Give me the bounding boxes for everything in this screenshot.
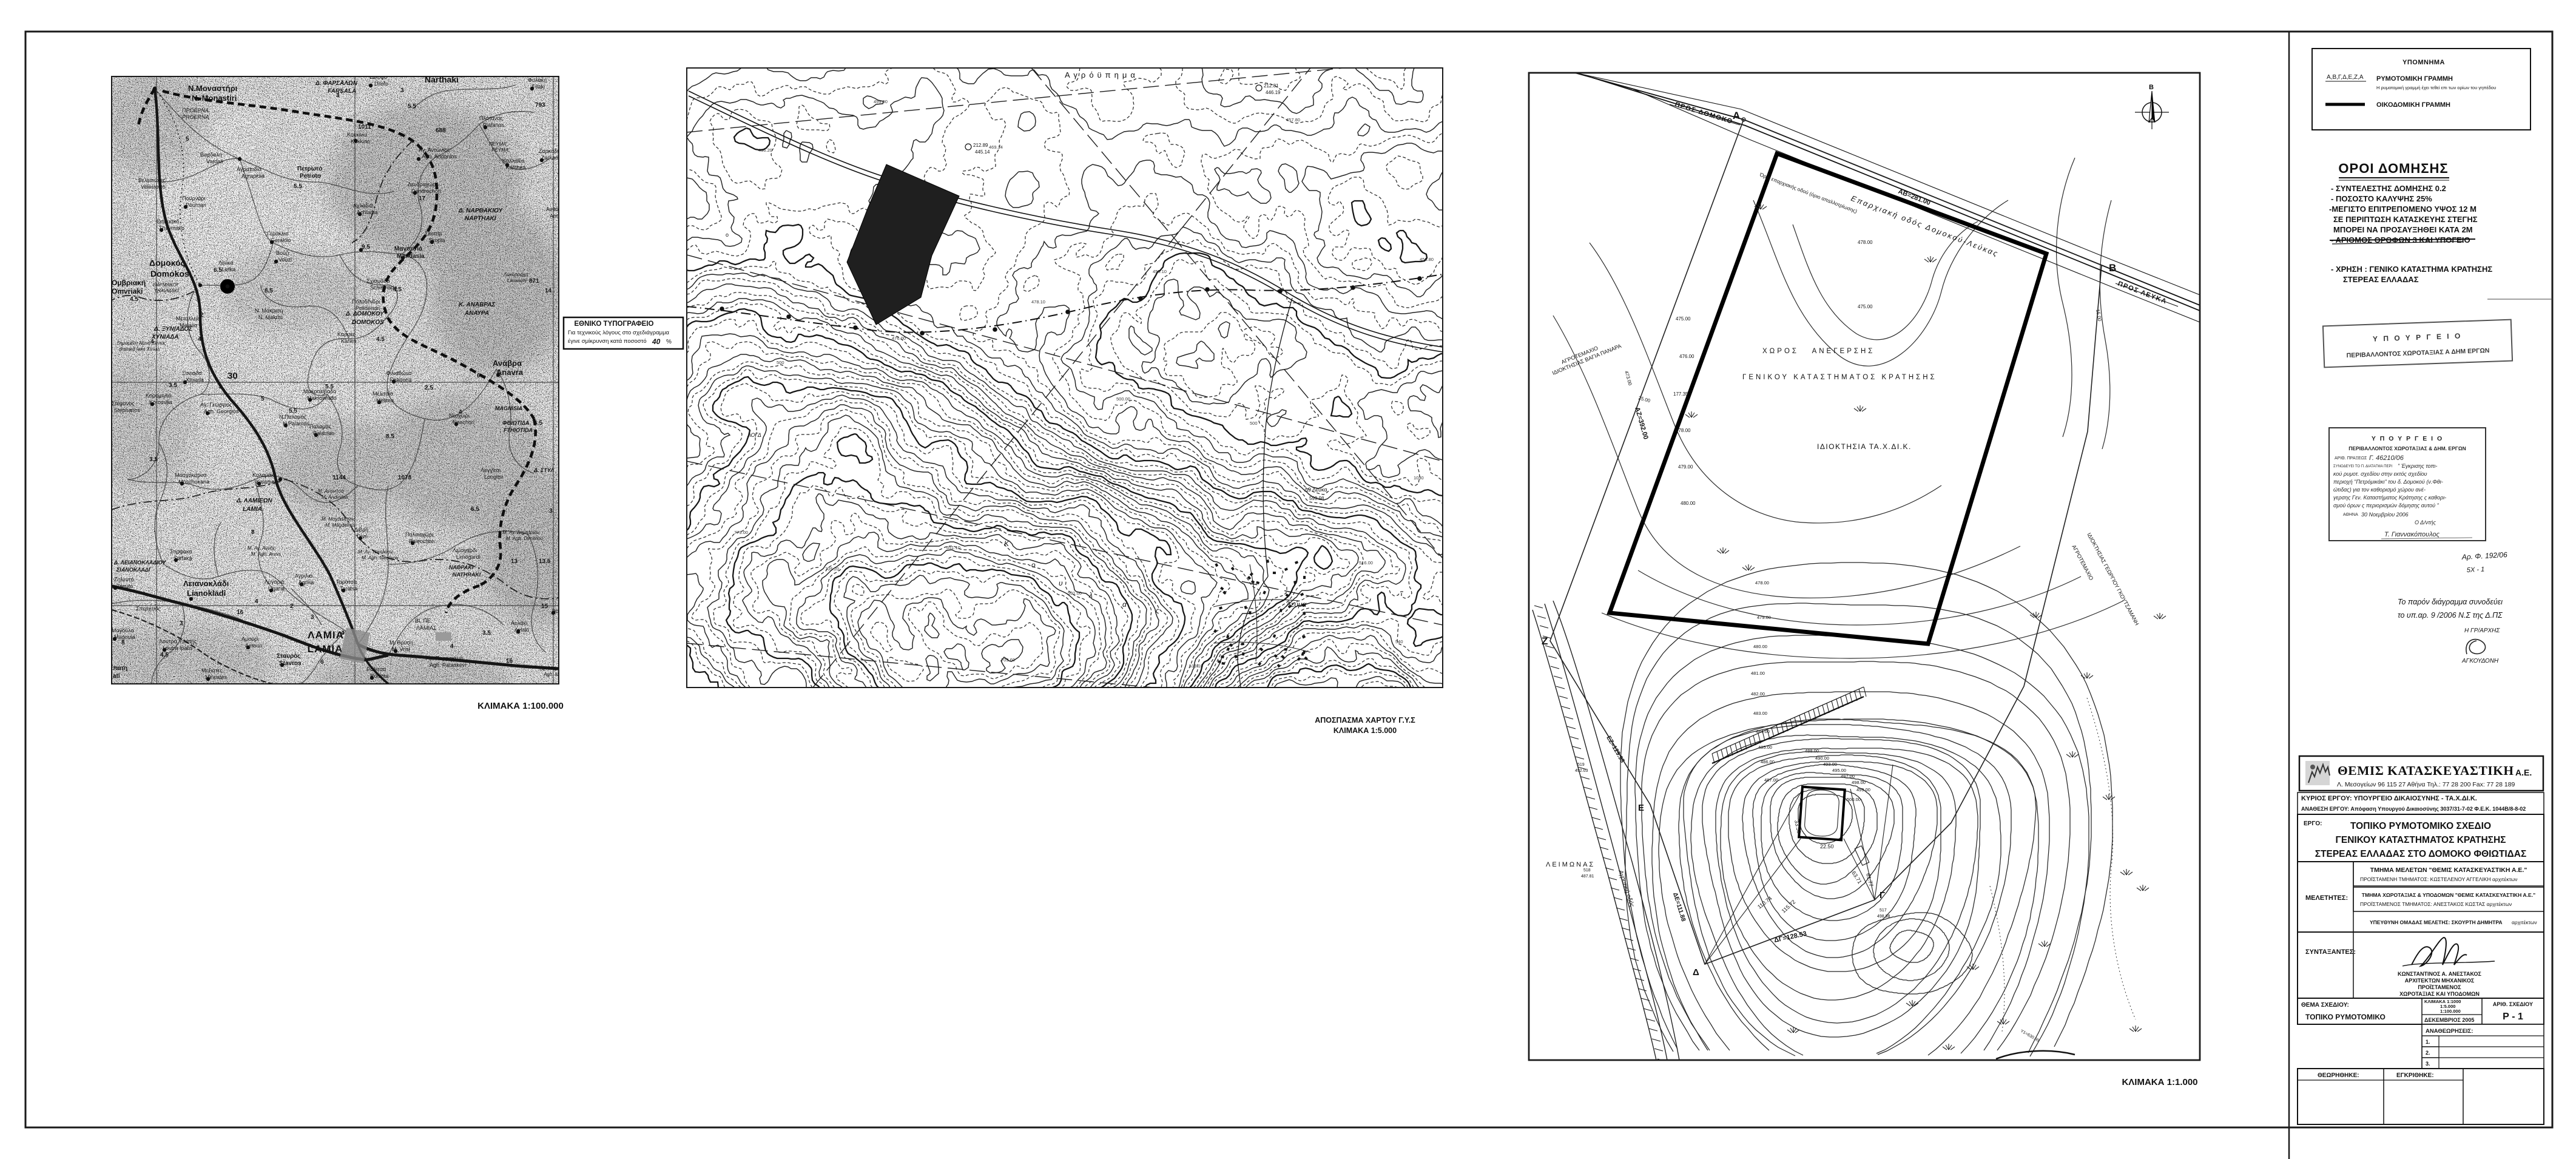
svg-text:1:100.000: 1:100.000 [2440, 1009, 2461, 1014]
svg-text:LAMIA: LAMIA [243, 506, 262, 513]
svg-text:478.00: 478.00 [1755, 580, 1769, 586]
svg-text:484.00: 484.00 [1756, 729, 1770, 734]
svg-text:212.81: 212.81 [1264, 83, 1279, 89]
svg-text:4.5: 4.5 [393, 286, 402, 293]
svg-text:3: 3 [400, 87, 404, 94]
svg-text:Ξυνιάδα: Ξυνιάδα [182, 370, 202, 376]
svg-text:Agrapidia: Agrapidia [241, 173, 265, 179]
svg-text:709.60: 709.60 [1001, 657, 1015, 663]
svg-text:Βελεσιώτες: Βελεσιώτες [138, 177, 166, 183]
svg-text:4: 4 [450, 643, 454, 650]
svg-text:Β: Β [2109, 262, 2116, 274]
svg-text:ΠΡΟΪΣΤΑΜΕΝΗ ΤΜΗΜΑΤΟΣ: ΚΩΣΤ: ΠΡΟΪΣΤΑΜΕΝΗ ΤΜΗΜΑΤΟΣ: ΚΩΣΤΕΛΕΝΟΥ ΑΓΓΕΛΙΚ… [2360, 876, 2518, 882]
svg-text:Δ: Δ [1693, 967, 1699, 978]
svg-text:481.00: 481.00 [1751, 671, 1765, 676]
svg-text:Μ. Αγ. Δημητρίου: Μ. Αγ. Δημητρίου [502, 530, 540, 535]
svg-text:Πουρνάρι: Πουρνάρι [182, 195, 205, 201]
svg-text:2: 2 [200, 312, 204, 319]
svg-text:ΘΑΥΜΑΚΟΙ: ΘΑΥΜΑΚΟΙ [153, 282, 178, 288]
svg-text:Ομβριακή: Ομβριακή [112, 279, 146, 287]
svg-text:5: 5 [261, 396, 265, 402]
svg-text:ΣΥΝΟΔΕΥΕΙ ΤΟ Π. ΔΙΑΤΑΓΜΑ ΠΕΡΙ: ΣΥΝΟΔΕΥΕΙ ΤΟ Π. ΔΙΑΤΑΓΜΑ ΠΕΡΙ [2333, 465, 2392, 468]
svg-text:486.00: 486.00 [1761, 759, 1775, 765]
svg-text:Λεύμα: Λεύμα [1286, 600, 1307, 609]
svg-text:Μαντασιά: Μαντασιά [394, 246, 423, 252]
svg-text:ΡΥΜΟΤΟΜΙΚΗ ΓΡΑΜΜΗ: ΡΥΜΟΤΟΜΙΚΗ ΓΡΑΜΜΗ [2376, 75, 2453, 83]
svg-text:Loutra Ipatis: Loutra Ipatis [163, 645, 193, 651]
svg-text:ΑΠΟΣΠΑΣΜΑ ΧΑΡΤΟΥ Γ.Υ.Σ: ΑΠΟΣΠΑΣΜΑ ΧΑΡΤΟΥ Γ.Υ.Σ [1315, 716, 1415, 725]
svg-text:το υπ.αρ. 9 /2006 Ν.Σ της: το υπ.αρ. 9 /2006 Ν.Σ της Δ.ΠΣ [2398, 611, 2503, 620]
svg-text:Πετρωτό: Πετρωτό [297, 166, 322, 172]
svg-text:Δ. ΔΟΜΟΚΟΥ: Δ. ΔΟΜΟΚΟΥ [345, 311, 385, 317]
svg-text:476.00: 476.00 [1679, 354, 1694, 359]
svg-text:4.5: 4.5 [130, 296, 138, 303]
svg-text:DOMOKOS: DOMOKOS [352, 319, 384, 326]
svg-text:ΕΓΚΡΙΘΗΚΕ:: ΕΓΚΡΙΘΗΚΕ: [2396, 1072, 2434, 1079]
svg-text:ΑΡΙΘ. ΣΧΕΔΙΟΥ: ΑΡΙΘ. ΣΧΕΔΙΟΥ [2493, 1001, 2533, 1007]
svg-text:ΑΡΧΙΤΕΚΤΩΝ ΜΗΧΑΝΙΚΟΣ: ΑΡΧΙΤΕΚΤΩΝ ΜΗΧΑΝΙΚΟΣ [2405, 978, 2475, 984]
svg-text:Αχλαδιά: Αχλαδιά [353, 203, 373, 209]
svg-text:15: 15 [541, 603, 548, 610]
svg-text:ati: ati [113, 673, 120, 680]
svg-text:5Χ - 1: 5Χ - 1 [2467, 566, 2485, 574]
svg-text:Μ. Αντίνιτσα: Μ. Αντίνιτσα [318, 488, 344, 494]
svg-text:30: 30 [228, 371, 238, 381]
svg-text:779.00: 779.00 [734, 530, 748, 535]
svg-text:5.5: 5.5 [289, 408, 297, 414]
svg-text:Διβρή: Διβρή [354, 527, 368, 533]
svg-text:ΑΘΗΝΑ: ΑΘΗΝΑ [2343, 513, 2358, 517]
svg-text:ΜΕΛΕΤΗΤΕΣ:: ΜΕΛΕΤΗΤΕΣ: [2305, 894, 2348, 902]
svg-text:500.00: 500.00 [1116, 396, 1130, 402]
svg-text:5.5: 5.5 [408, 103, 416, 110]
svg-text:Στέφανος: Στέφανος [112, 400, 135, 407]
svg-text:Α.Ε.: Α.Ε. [2515, 768, 2532, 777]
svg-text:MAGNISIA: MAGNISIA [495, 405, 522, 411]
svg-text:500: 500 [1250, 421, 1258, 426]
svg-text:ΑΓΚΟΥΔΟΝΗ: ΑΓΚΟΥΔΟΝΗ [2461, 658, 2499, 664]
svg-text:Ν.Παλαμάς: Ν.Παλαμάς [279, 414, 307, 420]
svg-text:487.81: 487.81 [1581, 874, 1594, 879]
svg-text:Vardali: Vardali [206, 158, 223, 164]
svg-text:Anavra: Anavra [496, 368, 524, 377]
svg-text:Δ. ΣΤΥΛ: Δ. ΣΤΥΛ [533, 467, 554, 473]
svg-text:40: 40 [652, 337, 661, 346]
svg-text:ΚΩΝΣΤΑΝΤΙΝΟΣ Α. ΑΝΕΣΤΑΚΟΣ: ΚΩΝΣΤΑΝΤΙΝΟΣ Α. ΑΝΕΣΤΑΚΟΣ [2398, 971, 2481, 977]
svg-text:Ν. Μάκριση: Ν. Μάκριση [255, 308, 283, 314]
svg-text:Θαυμακό: Θαυμακό [157, 218, 179, 225]
svg-text:16: 16 [237, 609, 244, 616]
svg-text:Στίρφακα: Στίρφακα [170, 549, 192, 555]
svg-text:212.89: 212.89 [973, 143, 988, 148]
svg-text:Lianokladi: Lianokladi [187, 589, 226, 598]
svg-text:Το παρόν διάγραμμα συνοδεύει: Το παρόν διάγραμμα συνοδεύει [2398, 598, 2503, 606]
svg-text:Κ. ΑΝΑΒΡΑΣ: Κ. ΑΝΑΒΡΑΣ [459, 302, 496, 308]
svg-text:Η ΓΡ/ΑΡΧΗΣ: Η ΓΡ/ΑΡΧΗΣ [2464, 627, 2500, 634]
svg-text:Limogardi: Limogardi [456, 554, 480, 560]
svg-text:ΥΠΕΥΘΥΝΗ ΟΜΑΔΑΣ ΜΕΛΕΤΗΣ: Σ: ΥΠΕΥΘΥΝΗ ΟΜΑΔΑΣ ΜΕΛΕΤΗΣ: ΣΚΟΥΡΤΗ ΔΗΜΗΤΡΑ [2370, 919, 2503, 925]
svg-text:3.: 3. [2426, 1061, 2430, 1067]
svg-text:478.00: 478.00 [1676, 428, 1691, 433]
svg-text:Likorachi: Likorachi [507, 278, 527, 283]
svg-text:ΦΘΙΩΤΙΔΑ: ΦΘΙΩΤΙΔΑ [502, 420, 529, 426]
svg-text:- ΧΡΗΣΗ : ΓΕΝΙΚΟ ΚΑΤΑΣΤΗΜΑ ΚΡΑ: - ΧΡΗΣΗ : ΓΕΝΙΚΟ ΚΑΤΑΣΤΗΜΑ ΚΡΑΤΗΣΗΣ [2331, 265, 2492, 274]
svg-text:14: 14 [545, 288, 552, 294]
svg-text:Κορομηλιά: Κορομηλιά [146, 393, 172, 399]
svg-text:Καλαμάκι: Καλαμάκι [252, 472, 275, 478]
svg-text:499.00: 499.00 [1856, 787, 1870, 792]
svg-text:ΣΕ ΠΕΡΙΠΤΩΣΗ ΚΑΤΑΣΚΕΥΗΣ ΣΤΕΓΗΣ: ΣΕ ΠΕΡΙΠΤΩΣΗ ΚΑΤΑΣΚΕΥΗΣ ΣΤΕΓΗΣ [2333, 215, 2478, 224]
svg-text:ΤΜΗΜΑ ΜΕΛΕΤΩΝ "ΘΕΜΙΣ ΚΑΤΑΣΚ: ΤΜΗΜΑ ΜΕΛΕΤΩΝ "ΘΕΜΙΣ ΚΑΤΑΣΚΕΥΑΣΤΙΚΗ Α.Ε.… [2370, 867, 2527, 874]
svg-text:Karies: Karies [341, 338, 357, 344]
svg-text:Αγρόϋπημα: Αγρόϋπημα [1065, 70, 1139, 79]
svg-text:Pournari: Pournari [186, 202, 206, 208]
svg-text:Vouzi: Vouzi [278, 257, 292, 263]
svg-text:Δ9 Λεύκα: Δ9 Λεύκα [1304, 487, 1327, 493]
svg-text:2.5: 2.5 [425, 385, 433, 391]
svg-text:8: 8 [251, 529, 255, 536]
svg-text:516.00: 516.00 [1359, 560, 1373, 566]
svg-text:705.20: 705.20 [825, 566, 839, 572]
svg-text:Domokos: Domokos [150, 269, 189, 279]
svg-text:ΠΡΟΕΡΝΑ: ΠΡΟΕΡΝΑ [182, 107, 209, 113]
svg-text:Agh. Paraskevi: Agh. Paraskevi [430, 662, 467, 668]
svg-text:Τ. Γιαννακόπουλος: Τ. Γιαννακόπουλος [2384, 531, 2440, 538]
svg-text:Κ: Κ [1004, 539, 1010, 548]
svg-text:M. Andinitsa: M. Andinitsa [322, 495, 348, 500]
svg-text:πάτη: πάτη [113, 665, 127, 672]
svg-text:4: 4 [255, 598, 258, 605]
svg-text:ΕΡΓΟ:: ΕΡΓΟ: [2304, 820, 2322, 827]
svg-text:Γεράκλιο: Γεράκλιο [267, 231, 288, 237]
svg-text:3.5: 3.5 [169, 382, 177, 389]
svg-text:ΕΘΝΙΚΟ ΤΥΠΟΓΡΑΦΕΙΟ: ΕΘΝΙΚΟ ΤΥΠΟΓΡΑΦΕΙΟ [575, 320, 654, 328]
svg-text:Η ρυμοτομική γραμμή έχει τεθεί: Η ρυμοτομική γραμμή έχει τεθεί επι των ο… [2376, 85, 2496, 90]
svg-text:M. Agh. Dimitriou: M. Agh. Dimitriou [506, 536, 544, 541]
svg-text:Μ. Αγ. Νικολάου: Μ. Αγ. Νικολάου [358, 549, 393, 555]
svg-text:ΑΝΑΘΕΩΡΗΣΕΙΣ:: ΑΝΑΘΕΩΡΗΣΕΙΣ: [2426, 1028, 2473, 1035]
svg-text:Δ. ΝΑΡΘΑΚΙΟΥ: Δ. ΝΑΡΘΑΚΙΟΥ [458, 208, 503, 214]
svg-text:480.00: 480.00 [1753, 644, 1767, 649]
svg-text:α: α [1122, 600, 1127, 609]
svg-text:λ: λ [1088, 591, 1093, 600]
svg-text:Για τεχνικούς λόγους στο σχεδι: Για τεχνικούς λόγους στο σχεδιάγραμμα [568, 329, 670, 336]
svg-text:499.90: 499.90 [874, 99, 888, 104]
svg-text:1.: 1. [2426, 1039, 2430, 1045]
svg-text:482.00: 482.00 [1751, 691, 1765, 697]
svg-text:υ: υ [1059, 579, 1063, 587]
svg-text:Λεύκα: Λεύκα [218, 260, 234, 266]
svg-text:Ανάβρα: Ανάβρα [493, 359, 522, 368]
svg-text:13: 13 [511, 558, 518, 565]
svg-text:ΚΛΙΜΑΚΑ 1:5.000: ΚΛΙΜΑΚΑ 1:5.000 [1334, 726, 1397, 735]
svg-text:ΥΠΟΜΝΗΜΑ: ΥΠΟΜΝΗΜΑ [2402, 59, 2445, 66]
svg-text:540: 540 [1395, 639, 1403, 644]
svg-text:Πλάτανος: Πλάτανος [479, 115, 503, 121]
svg-text:Καλλιθέα: Καλλιθέα [502, 158, 524, 164]
svg-text:3.5: 3.5 [149, 456, 158, 463]
svg-text:475.00: 475.00 [1858, 304, 1873, 309]
svg-text:ΚΥΡΙΟΣ ΕΡΓΟΥ: ΥΠΟΥΡΓΕΙΟ ΔΙΚΑΙΟ: ΚΥΡΙΟΣ ΕΡΓΟΥ: ΥΠΟΥΡΓΕΙΟ ΔΙΚΑΙΟΣΥΝΗΣ - ΤΑ… [2301, 795, 2477, 802]
svg-text:8.5: 8.5 [386, 433, 394, 440]
svg-text:4.5: 4.5 [160, 652, 169, 658]
svg-text:drained lake Xinias: drained lake Xinias [119, 346, 160, 352]
svg-text:Λογγίτσι: Λογγίτσι [480, 467, 501, 473]
svg-text:Αγριλιά: Αγριλιά [295, 573, 312, 579]
svg-text:871: 871 [529, 278, 539, 285]
svg-text:Παλαμάς: Παλαμάς [309, 424, 332, 430]
svg-text:495.00: 495.00 [1832, 768, 1846, 773]
svg-text:ο: ο [1031, 561, 1036, 569]
svg-text:591.00: 591.00 [1068, 590, 1082, 596]
svg-text:ΛΟΓΔ: ΛΟΓΔ [747, 432, 761, 438]
svg-text:Σπερχειός: Σπερχειός [135, 606, 161, 612]
svg-text:FARSALA: FARSALA [328, 88, 356, 95]
svg-text:Κοκκίνω: Κοκκίνω [347, 132, 367, 138]
svg-text:ΡΕΥΜΑ: ΡΕΥΜΑ [491, 147, 508, 153]
svg-text:519: 519 [1577, 763, 1585, 767]
svg-text:Μ. Μαγδαληνής: Μ. Μαγδαληνής [322, 516, 356, 522]
svg-text:Λυκόρραχη: Λυκόρραχη [503, 272, 528, 277]
svg-text:177.35: 177.35 [1673, 391, 1688, 397]
svg-text:Stephanos: Stephanos [114, 407, 141, 413]
svg-text:ΜΠΟΡΕΙ ΝΑ ΠΡΟΣΑΥΞΗΘΕΙ ΚΑΤΑ 2Μ: ΜΠΟΡΕΙ ΝΑ ΠΡΟΣΑΥΞΗΘΕΙ ΚΑΤΑ 2Μ [2333, 225, 2473, 234]
svg-text:περιοχή "Πετρόμικάκι" του δ. Δ: περιοχή "Πετρόμικάκι" του δ. Δομοκού (ν.… [2333, 479, 2443, 485]
svg-text:ΙΔΙΟΚΤΗΣΙΑ ΤΑ.Χ.ΔΙ.Κ.: ΙΔΙΟΚΤΗΣΙΑ ΤΑ.Χ.ΔΙ.Κ. [1817, 442, 1912, 451]
svg-text:ΚΛΙΜΑΚΑ 1:1.000: ΚΛΙΜΑΚΑ 1:1.000 [2122, 1077, 2197, 1087]
svg-text:Ξηραμένη λίμνη Ξυνιάς: Ξηραμένη λίμνη Ξυνιάς [116, 340, 166, 346]
svg-text:Ροδίτσα: Ροδίτσα [366, 666, 386, 672]
svg-text:492.03: 492.03 [1575, 769, 1588, 773]
svg-text:483.00: 483.00 [1753, 711, 1767, 716]
svg-text:Πολυδένδρι: Πολυδένδρι [352, 299, 380, 305]
svg-text:Βούζι: Βούζι [276, 250, 289, 256]
svg-text:-ΜΕΓΙΣΤΟ ΕΠΙΤΡΕΠΟΜΕΝΟ ΥΨΟΣ 12: -ΜΕΓΙΣΤΟ ΕΠΙΤΡΕΠΟΜΕΝΟ ΥΨΟΣ 12 Μ [2329, 204, 2477, 214]
svg-text:793: 793 [535, 102, 545, 109]
svg-text:488.00: 488.00 [1805, 748, 1819, 754]
svg-text:Dilofo: Dilofo [374, 81, 388, 87]
svg-text:- ΠΟΣΟΣΤΟ ΚΑΛΥΨΗΣ 25%: - ΠΟΣΟΣΤΟ ΚΑΛΥΨΗΣ 25% [2331, 194, 2432, 203]
svg-text:6: 6 [320, 659, 324, 666]
svg-text:1030: 1030 [1414, 475, 1424, 481]
svg-text:469.14: 469.14 [989, 144, 1003, 150]
svg-text:κού ρυμοτ. σχεδίου στην εκτός: κού ρυμοτ. σχεδίου στην εκτός σχεδίου [2333, 471, 2427, 477]
svg-text:ΠΕΡΙΒΑΛΛΟΝΤΟΣ ΧΩΡΟΤΑΞΙΑΣ &: ΠΕΡΙΒΑΛΛΟΝΤΟΣ ΧΩΡΟΤΑΞΙΑΣ & ΔΗΜ. ΕΡΓΩΝ [2348, 445, 2466, 451]
svg-text:1011: 1011 [358, 124, 371, 130]
svg-text:ΛΕΙΜΩΝΑΣ: ΛΕΙΜΩΝΑΣ [1546, 861, 1595, 868]
svg-text:ΘΕΜΙΣ ΚΑΤΑΣΚΕΥΑΣΤΙΚΗ: ΘΕΜΙΣ ΚΑΤΑΣΚΕΥΑΣΤΙΚΗ [2338, 763, 2514, 778]
svg-text:ώτιδας) για τον καθορισμό χώρο: ώτιδας) για τον καθορισμό χώρου ανέ- [2333, 487, 2426, 493]
svg-text:16: 16 [506, 658, 513, 664]
svg-text:Υ Π Ο Υ Ρ Γ Ε Ι Ο: Υ Π Ο Υ Ρ Γ Ε Ι Ο [2372, 435, 2443, 442]
svg-text:Ρ - 1: Ρ - 1 [2503, 1012, 2523, 1022]
svg-text:ΣΙΑΝΟΚΛΑΔΙ: ΣΙΑΝΟΚΛΑΔΙ [116, 567, 150, 573]
svg-text:%: % [666, 339, 672, 345]
svg-text:Παλαιοχώρι: Παλαιοχώρι [405, 532, 434, 538]
svg-text:Α: Α [1733, 110, 1740, 121]
svg-text:500: 500 [777, 360, 784, 365]
svg-text:17: 17 [419, 195, 426, 202]
svg-text:3: 3 [549, 508, 553, 515]
svg-text:M. Agh. Nikolaou: M. Agh. Nikolaou [362, 555, 399, 561]
svg-text:490.00: 490.00 [1815, 755, 1829, 761]
svg-text:Φυλάκη: Φυλάκη [528, 77, 547, 83]
svg-text:ΝΑΘΡΑΚΙ: ΝΑΘΡΑΚΙ [449, 564, 474, 570]
svg-text:ΑΝΑΥΡΑ: ΑΝΑΥΡΑ [464, 310, 489, 317]
svg-text:3: 3 [180, 620, 183, 627]
svg-text:5: 5 [186, 136, 189, 143]
svg-text:Αγραπιδιά: Αγραπιδιά [237, 166, 261, 172]
svg-text:517: 517 [1880, 908, 1887, 913]
svg-text:ΛΑΜΙΑ: ΛΑΜΙΑ [308, 629, 344, 641]
svg-text:Σταυρός: Σταυρός [277, 653, 300, 660]
svg-text:493.00: 493.00 [1823, 762, 1837, 767]
svg-text:479.00: 479.00 [1678, 464, 1693, 470]
svg-text:446.19: 446.19 [1266, 90, 1281, 95]
svg-text:ΠΕΥΜΑ: ΠΕΥΜΑ [489, 141, 506, 147]
svg-text:475.00: 475.00 [1676, 316, 1691, 322]
svg-text:Μ. Βρύση: Μ. Βρύση [389, 640, 413, 646]
svg-text:456.80: 456.80 [1420, 257, 1434, 262]
svg-text:22.50: 22.50 [1820, 843, 1834, 850]
svg-text:1078: 1078 [398, 475, 412, 481]
svg-text:M. Magdelinis: M. Magdelinis [325, 522, 355, 528]
svg-text:Μελιταία: Μελιταία [373, 391, 393, 397]
svg-text:466.20: 466.20 [758, 147, 772, 153]
svg-text:Δ. ΛΑΜΙΕΩΝ: Δ. ΛΑΜΙΕΩΝ [236, 498, 272, 504]
svg-text:Λουτρά Υπάτης: Λουτρά Υπάτης [159, 638, 197, 644]
svg-text:ΑΡΙΘ. ΠΡΑΞΕΩΣ: ΑΡΙΘ. ΠΡΑΞΕΩΣ [2335, 456, 2367, 461]
svg-text:ΠΡΟΪΣΤΑΜΕΝΟΣ ΤΜΗΜΑΤΟΣ: ΑΝΕΣΤΑ: ΠΡΟΪΣΤΑΜΕΝΟΣ ΤΜΗΜΑΤΟΣ: ΑΝΕΣΤΑΚΟΣ ΚΩΣΤΑΣ … [2360, 901, 2512, 907]
svg-text:2.: 2. [2426, 1050, 2430, 1056]
svg-text:Ο Δ/ντής: Ο Δ/ντής [2415, 519, 2436, 525]
svg-text:478.10: 478.10 [1031, 299, 1045, 305]
svg-text:γερσης Γεν. Καταστήματος Κράτη: γερσης Γεν. Καταστήματος Κράτησης ς καθο… [2333, 495, 2446, 501]
svg-text:ΤΜΗΜΑ ΧΩΡΟΤΑΞΙΑΣ & ΥΠΟΔΟΜΩΝ: ΤΜΗΜΑ ΧΩΡΟΤΑΞΙΑΣ & ΥΠΟΔΟΜΩΝ "ΘΕΜΙΣ ΚΑΤΑΣ… [2362, 892, 2535, 898]
svg-text:519.10: 519.10 [1189, 663, 1203, 669]
svg-text:479.00: 479.00 [1757, 615, 1771, 620]
svg-text:ΔΕΚΕΜΒΡΙΟΣ 2005: ΔΕΚΕΜΒΡΙΟΣ 2005 [2424, 1017, 2474, 1023]
svg-text:Ν.Μοναστήρι: Ν.Μοναστήρι [188, 84, 238, 93]
svg-text:4: 4 [459, 409, 462, 416]
svg-text:Omvriaki: Omvriaki [112, 287, 143, 296]
svg-text:Lefka: Lefka [222, 266, 235, 272]
svg-text:599.98: 599.98 [1309, 496, 1324, 501]
svg-text:30 Νοεμβρίου 2006: 30 Νοεμβρίου 2006 [2361, 512, 2409, 518]
svg-text:5: 5 [218, 384, 222, 390]
svg-text:ΠΡΟΪΣΤΑΜΕΝΟΣ: ΠΡΟΪΣΤΑΜΕΝΟΣ [2418, 984, 2461, 990]
svg-text:6.5: 6.5 [534, 420, 542, 427]
svg-text:487.00: 487.00 [1764, 777, 1778, 783]
svg-text:Βαρδαλή: Βαρδαλή [200, 152, 222, 158]
svg-text:ΛΑΜΙΑΣ: ΛΑΜΙΑΣ [416, 625, 437, 631]
svg-text:THAVMAKI: THAVMAKI [154, 288, 179, 294]
svg-text:459.10: 459.10 [1153, 269, 1167, 274]
svg-text:FTHIOTIDA: FTHIOTIDA [504, 427, 533, 433]
svg-text:Velesiotes: Velesiotes [141, 184, 166, 190]
svg-text:497.00: 497.00 [1841, 774, 1855, 779]
svg-text:Λιμογάρδι: Λιμογάρδι [453, 547, 477, 553]
svg-text:ΑΝΑΘΕΣΗ ΕΡΓΟΥ: Απόφαση Υπουργο: ΑΝΑΘΕΣΗ ΕΡΓΟΥ: Απόφαση Υπουργού Δικαιοσύ… [2301, 806, 2526, 812]
svg-text:Α,Β,Γ,Δ,Ε,Ζ,Α: Α,Β,Γ,Δ,Ε,Ζ,Α [2327, 74, 2364, 81]
svg-text:480.00: 480.00 [1681, 501, 1696, 506]
svg-text:ΣΥΝΤΑΞΑΝΤΕΣ:: ΣΥΝΤΑΞΑΝΤΕΣ: [2305, 948, 2356, 956]
svg-text:ς: ς [1156, 606, 1159, 615]
svg-text:Ε: Ε [1638, 803, 1644, 813]
svg-text:Μαγούλα: Μαγούλα [112, 627, 134, 634]
svg-text:ΓΕΝΙΚΟΥ ΚΑΤΑΣΤΗΜΑΤΟΣ ΚΡΑΤΗΣΗΣ: ΓΕΝΙΚΟΥ ΚΑΤΑΣΤΗΜΑΤΟΣ ΚΡΑΤΗΣΗΣ [2336, 835, 2506, 845]
svg-text:Longitsi: Longitsi [484, 474, 503, 480]
svg-text:Αγ. Γεώργιος: Αγ. Γεώργιος [200, 402, 232, 408]
svg-text:ΧΩΡΟΤΑΞΙΑΣ ΚΑΙ ΥΠΟΔΟΜΩΝ: ΧΩΡΟΤΑΞΙΑΣ ΚΑΙ ΥΠΟΔΟΜΩΝ [2399, 991, 2480, 997]
svg-text:8: 8 [121, 640, 125, 646]
svg-text:457.80: 457.80 [1286, 117, 1300, 123]
svg-text:PROERNA: PROERNA [182, 114, 209, 120]
svg-text:Petroto: Petroto [300, 173, 321, 180]
svg-text:Σκοπιά: Σκοπιά [425, 231, 442, 237]
svg-text:ΤΟΠΙΚΟ ΡΥΜΟΤΟΜΙΚΟ ΣΧΕΔΙΟ: ΤΟΠΙΚΟ ΡΥΜΟΤΟΜΙΚΟ ΣΧΕΔΙΟ [2350, 821, 2491, 831]
svg-text:1144: 1144 [332, 475, 346, 481]
svg-text:13.5: 13.5 [539, 558, 551, 565]
svg-text:518: 518 [1583, 868, 1591, 873]
svg-text:Λ. Μεσογείων 96 115 27 Αθή: Λ. Μεσογείων 96 115 27 Αθήνα Τηλ.: 77 28… [2337, 781, 2515, 788]
svg-text:3: 3 [311, 614, 314, 621]
svg-text:ΟΙΚΟΔΟΜΙΚΗ ΓΡΑΜΜΗ: ΟΙΚΟΔΟΜΙΚΗ ΓΡΑΜΜΗ [2376, 101, 2450, 109]
svg-text:αρχιτέκτων: αρχιτέκτων [2512, 919, 2537, 925]
svg-text:Ταράτσα: Ταράτσα [336, 579, 357, 585]
svg-text:Φιλιαδώνα: Φιλιαδώνα [386, 370, 412, 376]
svg-text:ΘΕΜΑ ΣΧΕΔΙΟΥ:: ΘΕΜΑ ΣΧΕΔΙΟΥ: [2301, 1002, 2349, 1009]
svg-text:476.00: 476.00 [892, 336, 906, 341]
svg-text:Zileuto: Zileuto [116, 583, 133, 589]
svg-text:σμού όρων ς περιορισμών δόμηση: σμού όρων ς περιορισμών δόμησης αυτού " [2333, 502, 2439, 509]
svg-text:5.5: 5.5 [294, 183, 302, 190]
svg-text:ΤΟΠΙΚΟ ΡΥΜΟΤΟΜΙΚΟ: ΤΟΠΙΚΟ ΡΥΜΟΤΟΜΙΚΟ [2305, 1013, 2385, 1021]
svg-text:" Έγκρισης τοπι-: " Έγκρισης τοπι- [2398, 463, 2437, 469]
svg-text:ΧΩΡΟΣ ΑΝΕΓΕΡΣΗΣ: ΧΩΡΟΣ ΑΝΕΓΕΡΣΗΣ [1762, 348, 1875, 355]
svg-text:Metalio: Metalio [180, 322, 197, 328]
svg-text:Λυγαριά: Λυγαριά [265, 579, 285, 585]
svg-text:ΘΕΩΡΗΘΗΚΕ:: ΘΕΩΡΗΘΗΚΕ: [2318, 1072, 2359, 1079]
svg-text:Μεξιάτες: Μεξιάτες [201, 667, 223, 674]
svg-text:ΚΛΙΜΑΚΑ 1:100.000: ΚΛΙΜΑΚΑ 1:100.000 [477, 701, 564, 711]
svg-text:3.5: 3.5 [482, 630, 491, 637]
svg-text:ΓΕΝΙΚΟΥ ΚΑΤΑΣΤΗΜΑΤΟΣ ΚΡΑΤΗΣΗΣ: ΓΕΝΙΚΟΥ ΚΑΤΑΣΤΗΜΑΤΟΣ ΚΡΑΤΗΣΗΣ [1742, 374, 1937, 381]
svg-text:Αγ. Μαρ: Αγ. Μαρ [539, 666, 558, 671]
svg-text:6.5: 6.5 [214, 267, 222, 274]
svg-text:Γ: Γ [1880, 890, 1885, 901]
svg-text:2: 2 [290, 603, 294, 610]
svg-text:ΒΙ. ΠΕ.: ΒΙ. ΠΕ. [415, 618, 433, 624]
svg-text:4: 4 [150, 339, 154, 345]
svg-text:NATHRAKI: NATHRAKI [453, 572, 481, 578]
svg-text:ΣΤΕΡΕΑΣ ΕΛΛΑΔΑΣ: ΣΤΕΡΕΑΣ ΕΛΛΑΔΑΣ [2343, 275, 2419, 284]
svg-text:Αγ. Παρασκευή: Αγ. Παρασκευή [426, 655, 463, 661]
svg-text:6: 6 [477, 373, 480, 379]
svg-text:Agh. Andonios: Agh. Andonios [422, 154, 457, 160]
svg-text:3: 3 [336, 92, 340, 99]
svg-text:ΝΑΡΤΗΑΚΙ: ΝΑΡΤΗΑΚΙ [465, 215, 496, 222]
svg-text:651.10: 651.10 [946, 545, 960, 550]
svg-text:ΧΥΝΙΑΔΑ: ΧΥΝΙΑΔΑ [151, 334, 179, 340]
svg-text:Ζηλευτό: Ζηλευτό [114, 576, 134, 583]
svg-text:N. Monastiri: N. Monastiri [192, 93, 237, 103]
svg-text:6.5: 6.5 [471, 506, 479, 513]
svg-text:498.00: 498.00 [1852, 780, 1866, 785]
svg-text:445.14: 445.14 [975, 149, 990, 155]
svg-text:Δενδροχώρι: Δενδροχώρι [408, 181, 437, 188]
svg-text:Δ. ΦΑΡΣΑΛΩΝ: Δ. ΦΑΡΣΑΛΩΝ [315, 80, 358, 87]
